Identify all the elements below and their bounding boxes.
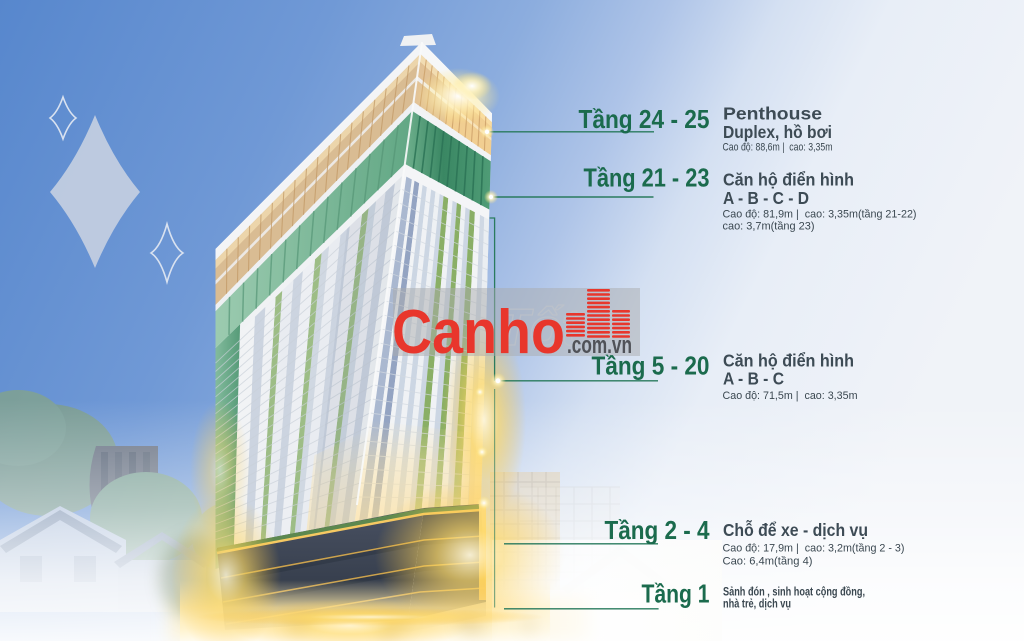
svg-text:Cao độ: 17,9m | cao: 3,2m(tần: Cao độ: 17,9m | cao: 3,2m(tầng 2 - 3) [723,543,905,555]
svg-text:Căn hộ điển hình: Căn hộ điển hình [723,170,854,190]
svg-text:Canho: Canho [392,298,565,367]
svg-text:A - B - C - D: A - B - C - D [723,188,809,208]
svg-text:Tầng 1: Tầng 1 [642,579,710,609]
svg-text:A - B - C: A - B - C [723,369,784,389]
svg-text:Tầng 21 - 23: Tầng 21 - 23 [584,163,710,193]
svg-text:Penthouse: Penthouse [723,104,822,124]
svg-text:Cao độ: 81,9m | cao: 3,35m(tầ: Cao độ: 81,9m | cao: 3,35m(tầng 21-22) [723,209,917,221]
svg-text:Tầng 5 - 20: Tầng 5 - 20 [592,351,710,381]
svg-text:Cao độ: 71,5m | cao: 3,35m: Cao độ: 71,5m | cao: 3,35m [723,390,858,402]
svg-text:Tầng 2 - 4: Tầng 2 - 4 [605,515,710,545]
svg-text:Duplex, hồ bơi: Duplex, hồ bơi [723,122,832,142]
svg-text:cao: 3,7m(tầng 23): cao: 3,7m(tầng 23) [723,221,815,233]
svg-text:Căn hộ điển hình: Căn hộ điển hình [723,351,854,371]
svg-text:Chỗ để xe - dịch vụ: Chỗ để xe - dịch vụ [723,519,868,540]
svg-text:nhà trẻ, dịch vụ: nhà trẻ, dịch vụ [723,597,791,611]
svg-text:Tầng 24 - 25: Tầng 24 - 25 [579,104,710,134]
svg-text:Cao: 6,4m(tầng 4): Cao: 6,4m(tầng 4) [723,556,813,568]
svg-text:Cao độ: 88,6m | cao: 3,35m: Cao độ: 88,6m | cao: 3,35m [723,142,833,154]
